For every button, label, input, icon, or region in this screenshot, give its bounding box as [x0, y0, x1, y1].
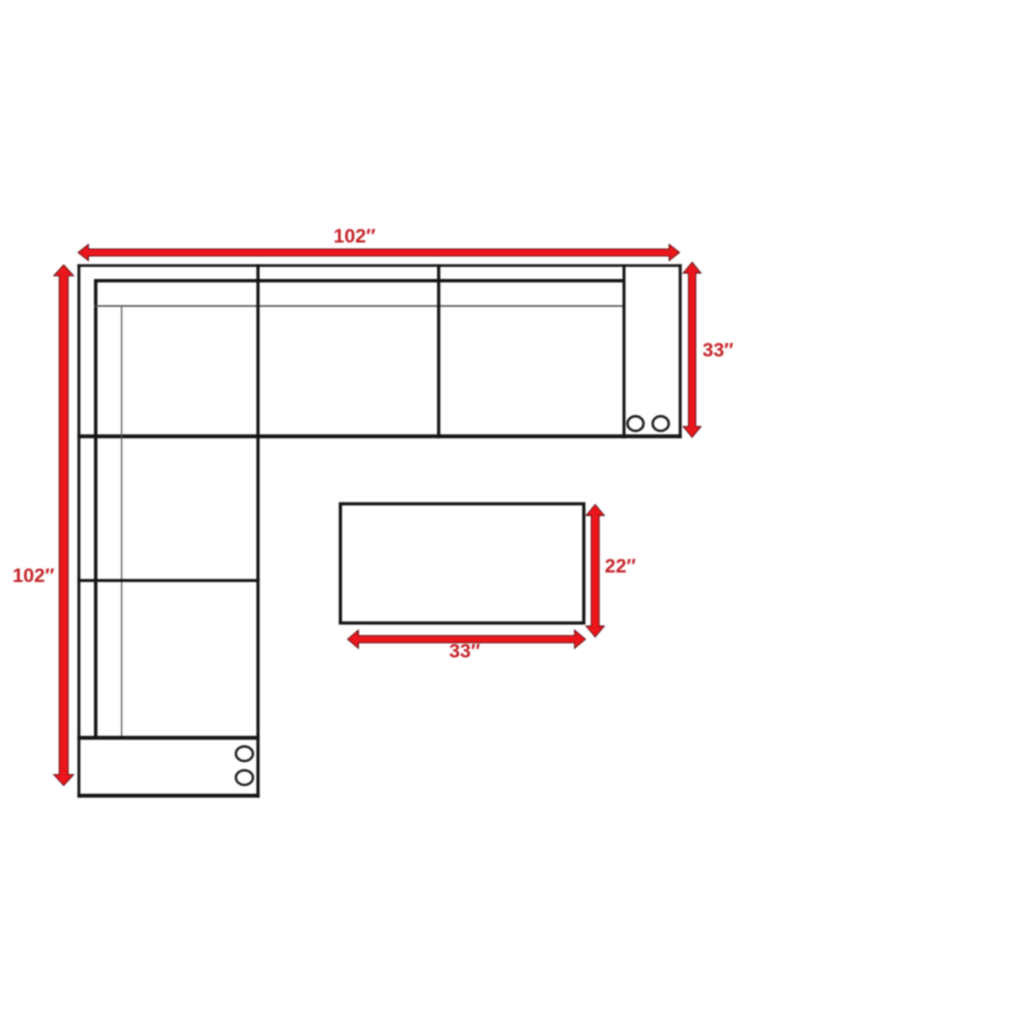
svg-text:33″: 33″ — [449, 641, 480, 663]
svg-text:102″: 102″ — [334, 226, 376, 248]
svg-text:102″: 102″ — [12, 565, 54, 587]
svg-text:33″: 33″ — [702, 339, 733, 361]
svg-text:22″: 22″ — [605, 555, 636, 577]
